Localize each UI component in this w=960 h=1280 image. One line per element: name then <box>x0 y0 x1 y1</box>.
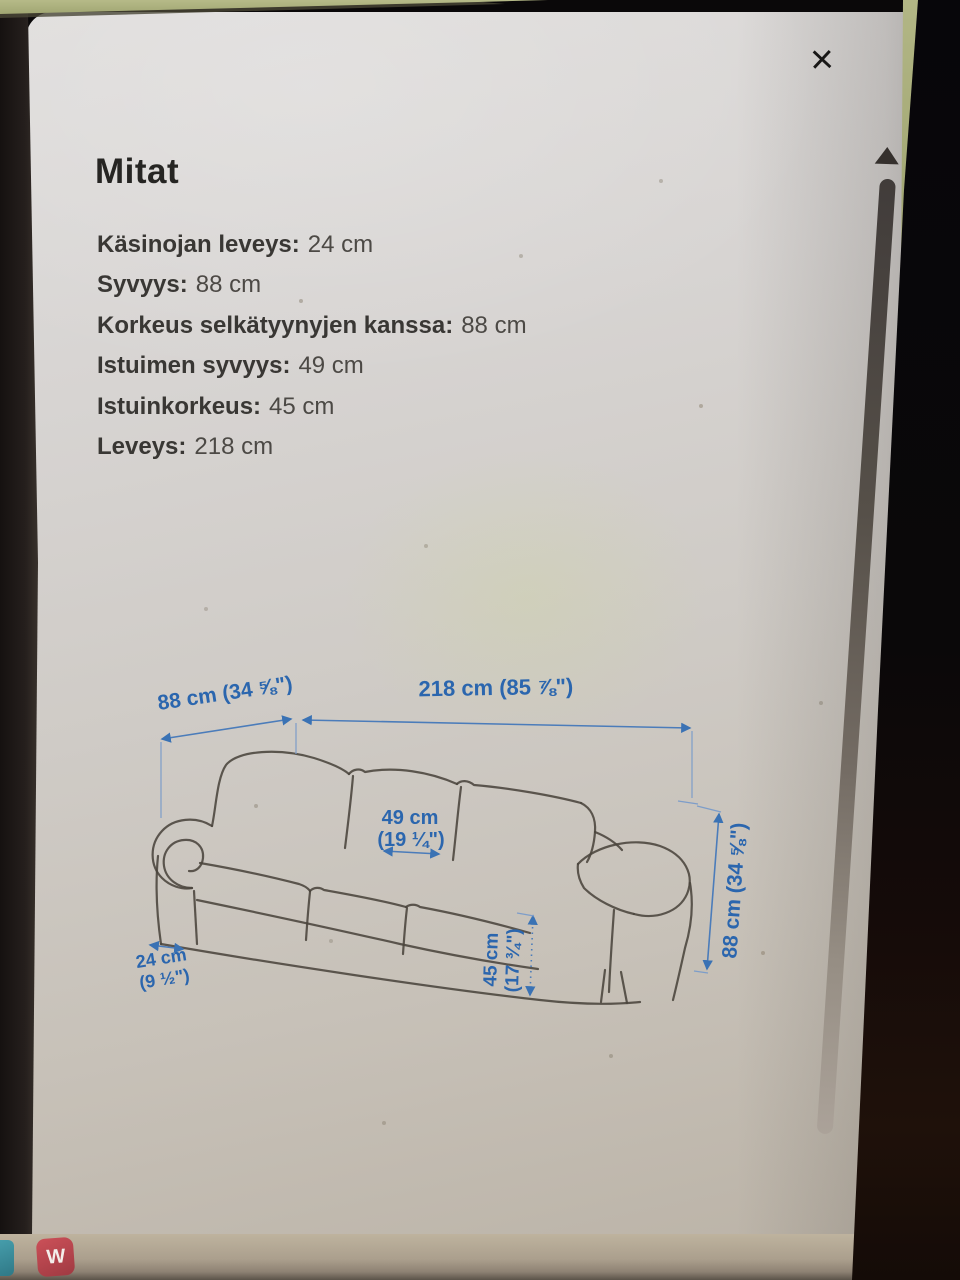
width-label: 218 cm (85 ⅞") <box>418 674 573 702</box>
modal-title: Mitat <box>95 152 179 192</box>
dimension-label: Leveys: <box>97 433 186 460</box>
dimension-row: Korkeus selkätyynyjen kanssa:88 cm <box>97 312 527 352</box>
close-icon[interactable]: × <box>795 33 849 87</box>
sofa-dimension-diagram: 88 cm (34 ⅝") 218 cm (85 ⅞") 49 cm (19 ¼… <box>100 648 760 1028</box>
screen-photo: Mitat Käsinojan leveys:24 cm Syvyys:88 c… <box>0 0 960 1280</box>
sofa-sketch <box>153 752 692 1004</box>
dimension-label: Istuimen syvyys: <box>97 352 290 379</box>
taskbar-teal-app-icon[interactable] <box>0 1240 14 1276</box>
dimension-row: Istuimen syvyys:49 cm <box>97 352 527 392</box>
dimension-value: 49 cm <box>298 352 363 379</box>
taskbar: W <box>0 1234 960 1280</box>
dimension-value: 45 cm <box>269 393 334 420</box>
seat-depth-label-cm: 49 cm <box>382 807 439 829</box>
dimension-label: Istuinkorkeus: <box>97 393 261 420</box>
dimension-lines <box>150 719 721 995</box>
dimension-row: Syvyys:88 cm <box>97 271 527 311</box>
dimension-value: 24 cm <box>308 231 373 258</box>
dimension-value: 218 cm <box>194 433 273 460</box>
depth-label: 88 cm (34 ⅝") <box>156 672 294 715</box>
dimension-row: Istuinkorkeus:45 cm <box>97 393 527 433</box>
dimension-row: Leveys:218 cm <box>97 433 527 473</box>
dimension-value: 88 cm <box>461 312 526 339</box>
dimension-row: Käsinojan leveys:24 cm <box>97 231 527 271</box>
dimension-list: Käsinojan leveys:24 cm Syvyys:88 cm Kork… <box>97 231 527 473</box>
taskbar-w-app-icon[interactable]: W <box>36 1237 76 1277</box>
dimensions-modal <box>26 12 960 1235</box>
dimension-label: Käsinojan leveys: <box>97 231 300 258</box>
seat-height-label-cm: 45 cm <box>480 932 503 987</box>
dimension-label: Korkeus selkätyynyjen kanssa: <box>97 312 453 339</box>
dimension-labels: 88 cm (34 ⅝") 218 cm (85 ⅞") 49 cm (19 ¼… <box>134 672 750 993</box>
dimension-value: 88 cm <box>196 271 261 298</box>
scroll-up-icon[interactable] <box>875 147 900 165</box>
dimension-label: Syvyys: <box>97 271 188 298</box>
seat-height-label-in: (17 ¾") <box>502 928 525 993</box>
seat-depth-label-in: (19 ¼") <box>377 829 444 851</box>
height-label: 88 cm (34 ⅝") <box>718 822 750 959</box>
